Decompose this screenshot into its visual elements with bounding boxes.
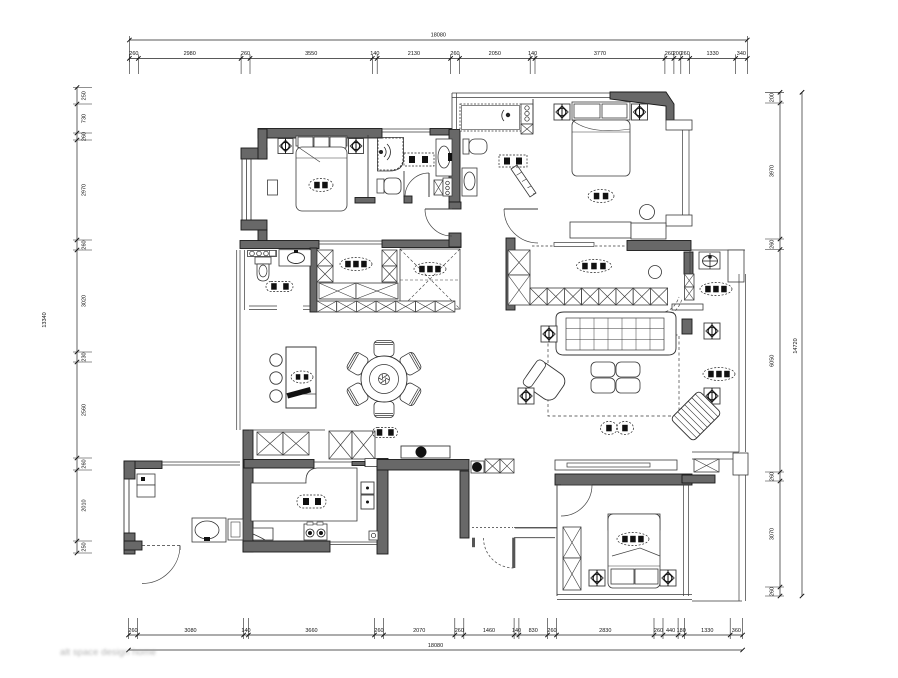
- svg-text:3080: 3080: [184, 628, 196, 634]
- svg-text:250: 250: [82, 542, 88, 551]
- svg-text:140: 140: [528, 51, 537, 57]
- svg-text:250: 250: [82, 91, 88, 100]
- svg-text:2970: 2970: [82, 184, 88, 196]
- svg-text:230: 230: [82, 352, 88, 361]
- svg-text:2830: 2830: [599, 628, 611, 634]
- svg-text:140: 140: [370, 51, 379, 57]
- svg-text:2070: 2070: [413, 628, 425, 634]
- svg-text:3550: 3550: [305, 51, 317, 57]
- svg-text:140: 140: [241, 628, 250, 634]
- svg-text:200: 200: [770, 93, 776, 102]
- svg-text:2560: 2560: [82, 404, 88, 416]
- svg-text:260: 260: [450, 51, 459, 57]
- svg-text:260: 260: [82, 459, 88, 468]
- svg-text:260: 260: [241, 51, 250, 57]
- svg-text:360: 360: [732, 628, 741, 634]
- svg-text:13340: 13340: [42, 312, 48, 327]
- svg-text:180: 180: [677, 628, 686, 634]
- svg-text:260: 260: [681, 51, 690, 57]
- svg-text:18080: 18080: [428, 643, 443, 649]
- svg-text:3970: 3970: [770, 165, 776, 177]
- svg-text:440: 440: [666, 628, 675, 634]
- svg-text:alt space design home: alt space design home: [60, 647, 156, 658]
- svg-text:2130: 2130: [408, 51, 420, 57]
- svg-text:260: 260: [129, 51, 138, 57]
- svg-text:730: 730: [82, 114, 88, 123]
- svg-text:1330: 1330: [701, 628, 713, 634]
- svg-text:3070: 3070: [770, 528, 776, 540]
- svg-text:340: 340: [737, 51, 746, 57]
- svg-text:3770: 3770: [594, 51, 606, 57]
- svg-text:140: 140: [512, 628, 521, 634]
- svg-text:6050: 6050: [770, 355, 776, 367]
- svg-text:2050: 2050: [489, 51, 501, 57]
- svg-text:260: 260: [128, 628, 137, 634]
- svg-text:2980: 2980: [184, 51, 196, 57]
- svg-text:260: 260: [374, 628, 383, 634]
- svg-text:260: 260: [82, 132, 88, 141]
- svg-text:830: 830: [529, 628, 538, 634]
- svg-text:260: 260: [770, 587, 776, 596]
- svg-text:14720: 14720: [793, 338, 799, 353]
- svg-text:260: 260: [82, 240, 88, 249]
- svg-text:260: 260: [770, 472, 776, 481]
- svg-text:260: 260: [547, 628, 556, 634]
- svg-text:3020: 3020: [82, 295, 88, 307]
- svg-text:1330: 1330: [706, 51, 718, 57]
- svg-text:260: 260: [654, 628, 663, 634]
- svg-text:260: 260: [455, 628, 464, 634]
- svg-text:18080: 18080: [431, 33, 446, 39]
- svg-text:2010: 2010: [82, 499, 88, 511]
- svg-text:260: 260: [769, 240, 775, 249]
- svg-text:1460: 1460: [483, 628, 495, 634]
- svg-text:3660: 3660: [305, 628, 317, 634]
